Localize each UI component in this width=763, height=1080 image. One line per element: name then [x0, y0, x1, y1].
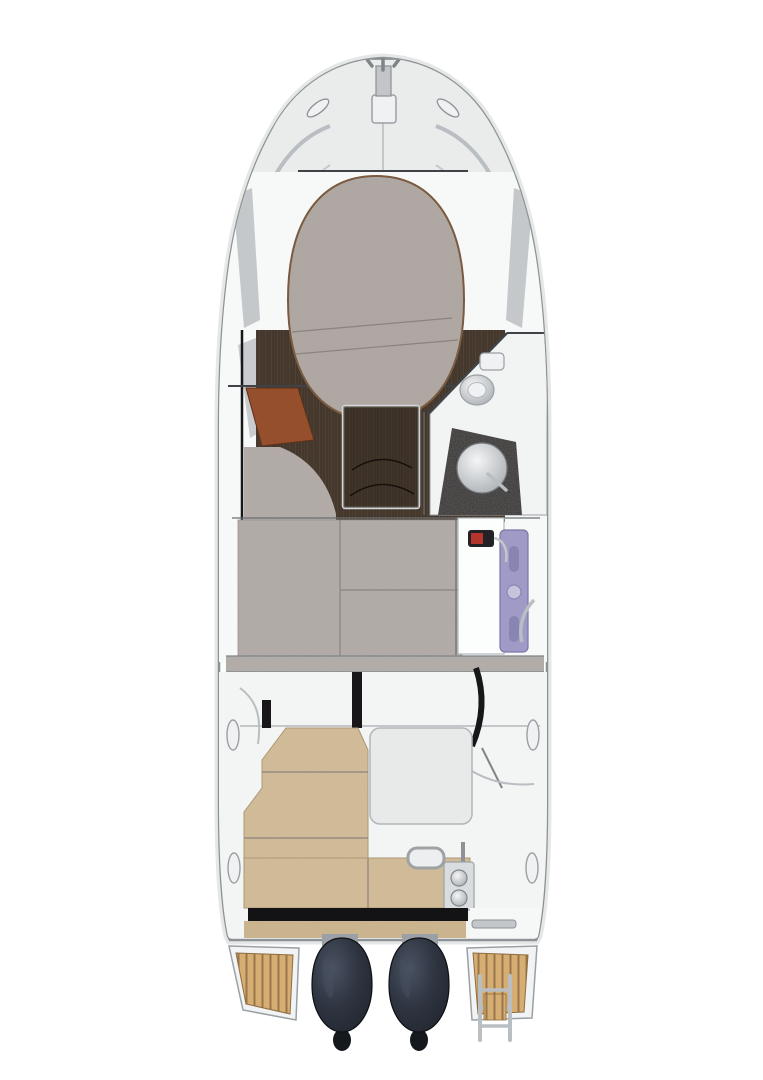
outboard-engines	[312, 938, 449, 1051]
latch-bottom	[451, 890, 467, 906]
companionway	[456, 518, 534, 655]
door-handle	[507, 585, 521, 599]
v-berth-cushion	[288, 176, 464, 420]
latch-top	[451, 870, 467, 886]
mid-berth-cushion	[238, 520, 462, 656]
aft-bulkhead-band	[226, 656, 544, 672]
ladder-teak-step	[484, 994, 506, 1020]
bulkhead-band	[226, 656, 544, 672]
cleat-starboard-mid	[527, 720, 539, 750]
cleat-starboard-aft	[526, 853, 538, 883]
anchor-ring	[380, 41, 387, 48]
door-frame-port	[262, 700, 271, 728]
door-slot-bottom	[509, 616, 519, 642]
windlass-box	[372, 95, 396, 123]
toilet-seat-inner	[468, 383, 486, 398]
stern	[229, 934, 537, 1051]
swim-platform-port	[229, 946, 299, 1020]
fire-extinguisher-band	[471, 533, 483, 544]
engine-port	[312, 938, 372, 1032]
cockpit-module	[370, 728, 472, 824]
boat-plan-canvas	[0, 0, 763, 1080]
bench-shadow-strip	[248, 908, 468, 921]
cabin-table	[343, 406, 419, 508]
cleat-port-mid	[227, 720, 239, 750]
v-berth	[288, 176, 464, 420]
boat-plan-svg	[0, 0, 763, 1080]
swim-platform-starboard	[467, 946, 537, 1040]
bench-grab-handle	[408, 848, 444, 868]
transom-handle-bar	[472, 920, 516, 928]
door-frame-center	[352, 672, 362, 728]
engine-starboard	[389, 938, 449, 1032]
cabin-interior	[219, 172, 547, 672]
cockpit	[219, 668, 547, 938]
cleat-port-aft	[228, 853, 240, 883]
mid-berth	[238, 520, 462, 656]
door-slot-top	[509, 546, 519, 572]
stern-latches	[444, 862, 474, 910]
toilet-tank	[480, 353, 504, 370]
